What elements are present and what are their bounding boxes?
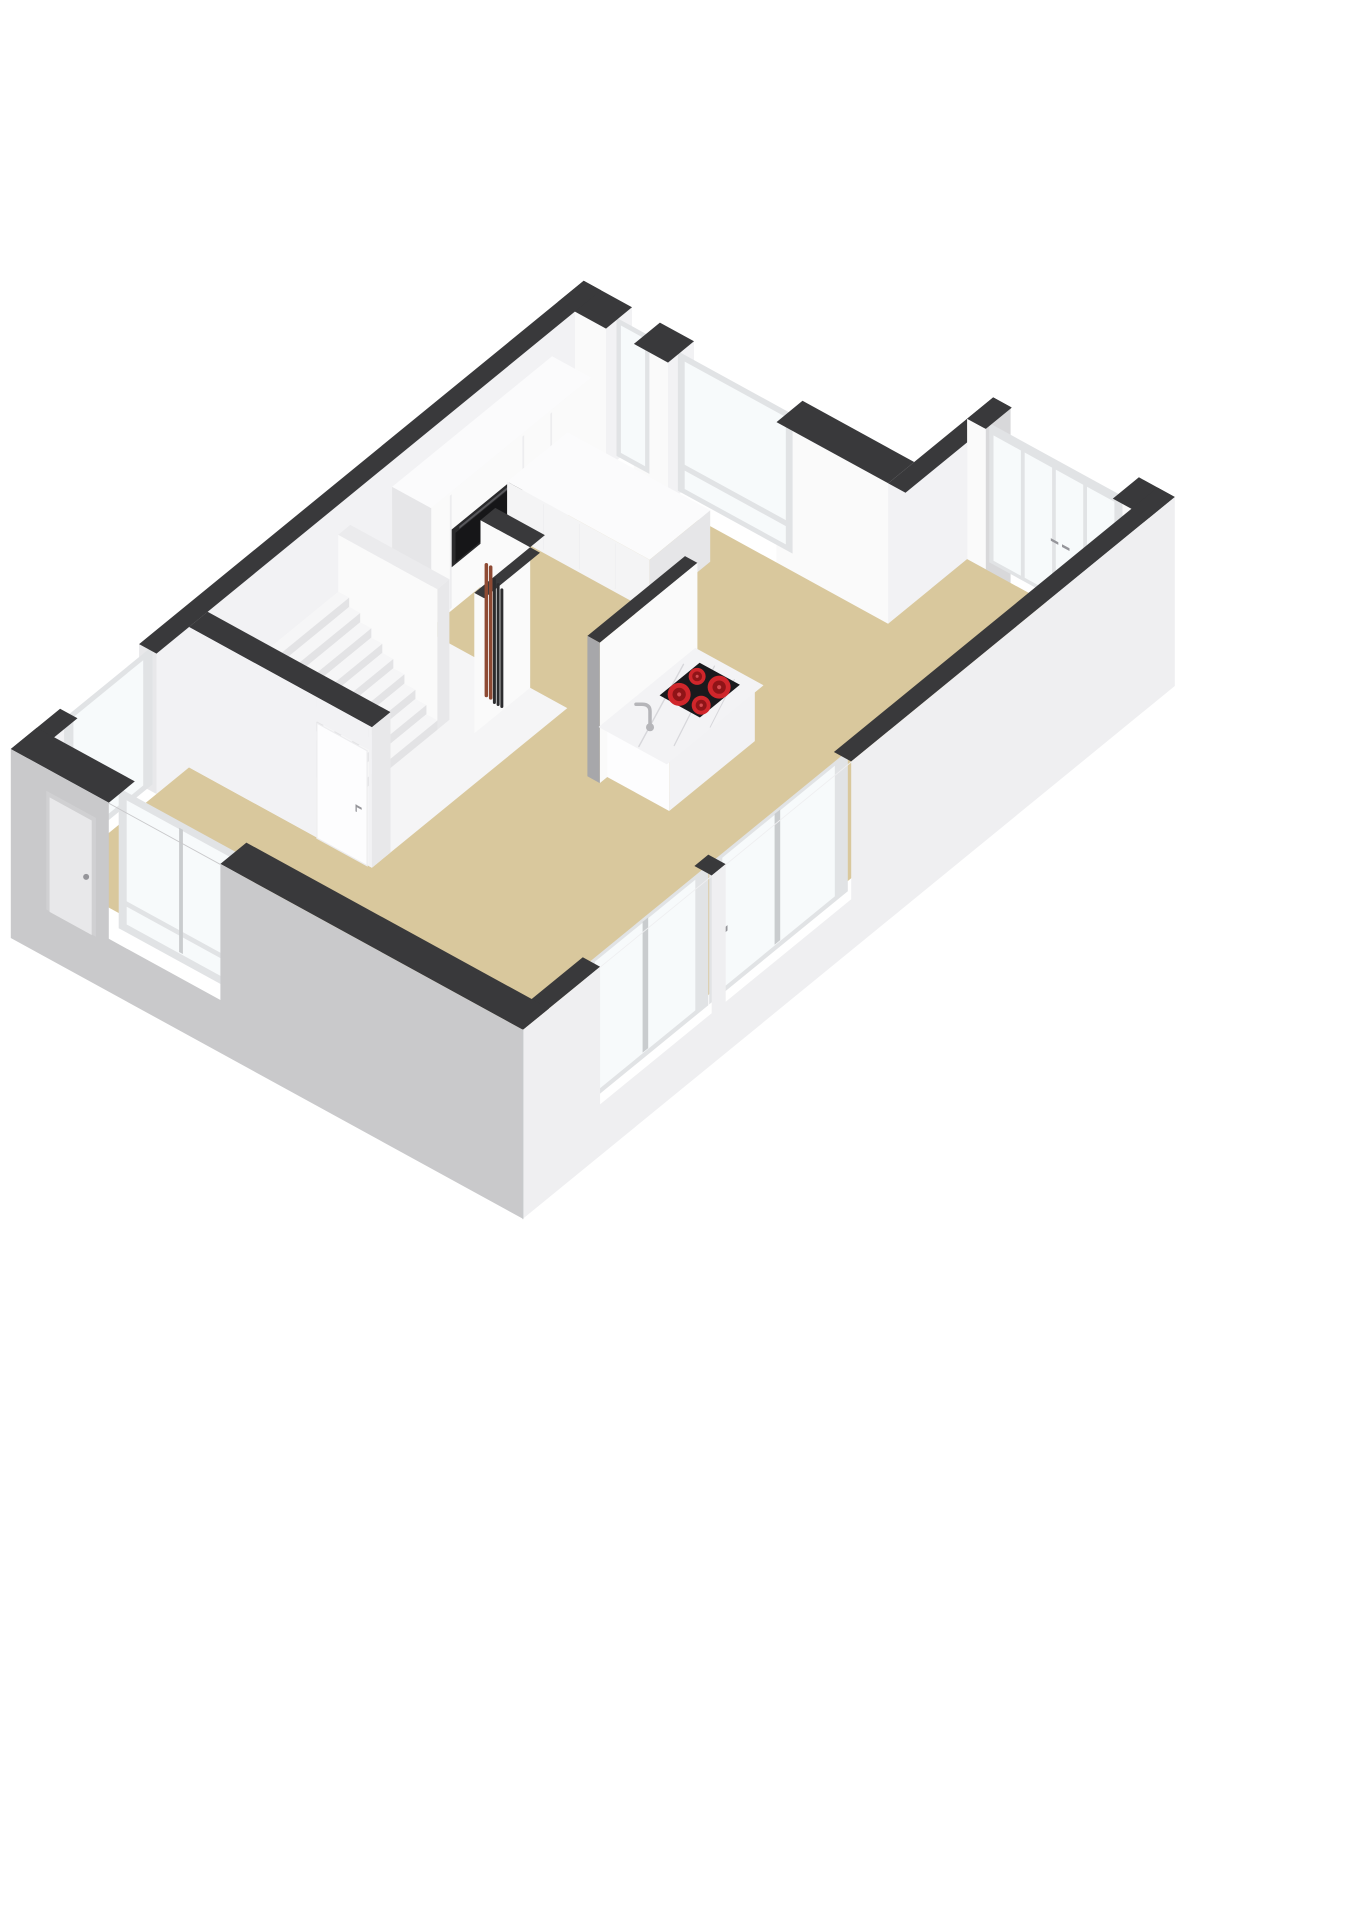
counter-seam (615, 544, 616, 590)
stair-flank-wall-end (437, 579, 449, 729)
hall-wall-face (369, 726, 372, 868)
interior-door-handle-drop (356, 804, 357, 812)
hob-burner-dot (699, 704, 702, 707)
se-window-mullion (643, 917, 649, 1052)
hob-burner-dot (696, 675, 699, 678)
french-door-panel-glass (1025, 453, 1052, 593)
front-door-handle (83, 874, 89, 880)
hall-wall-end (372, 712, 391, 868)
french-door-panel-glass (994, 435, 1021, 575)
cabinet-seam (450, 494, 452, 609)
island-wall-end (587, 636, 599, 783)
counter-seam (543, 504, 544, 550)
hob-burner-dot (717, 685, 721, 689)
bay-wall-face (967, 419, 986, 570)
hob-burner-dot (677, 692, 681, 696)
counter-seam (579, 524, 580, 570)
front-door-leaf (50, 797, 92, 935)
se-window-mullion (775, 810, 781, 945)
floorplan-render (0, 0, 1358, 1920)
sw-window-mullion (179, 828, 183, 954)
floorplan-3d-canvas (0, 0, 1358, 1920)
